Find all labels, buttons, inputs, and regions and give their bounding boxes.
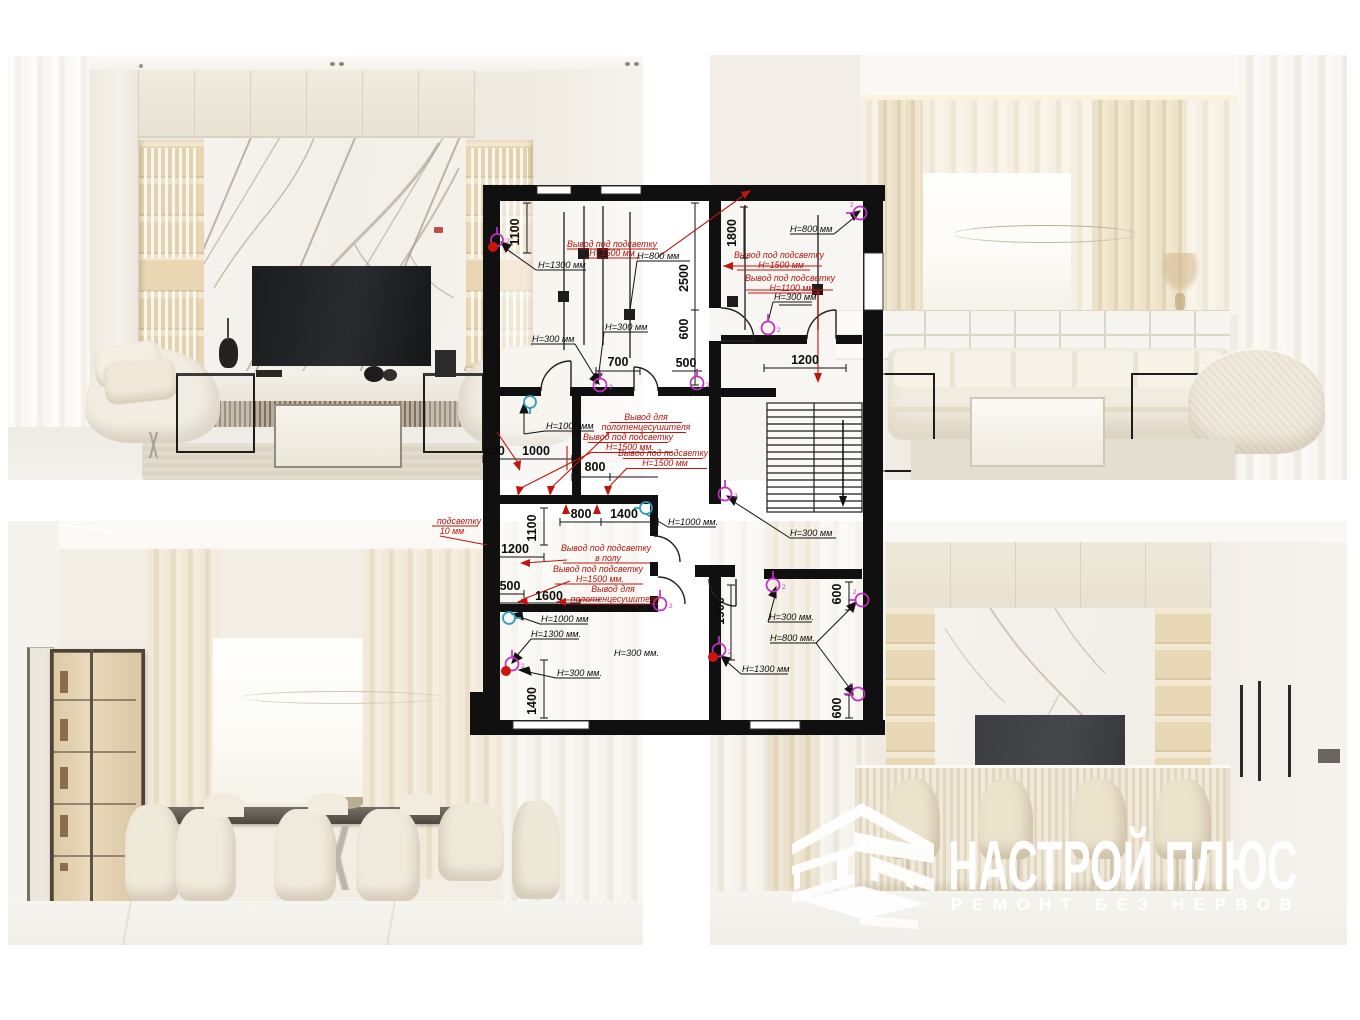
svg-text:2: 2	[850, 202, 854, 209]
svg-text:H=300 мм: H=300 мм	[790, 528, 833, 538]
svg-text:H=300 мм.: H=300 мм.	[769, 612, 814, 622]
svg-text:H=1300 мм: H=1300 мм	[538, 260, 586, 270]
svg-text:H=800 мм: H=800 мм	[637, 251, 680, 261]
svg-text:2: 2	[777, 327, 781, 334]
svg-text:H=1500 мм.: H=1500 мм.	[576, 574, 624, 584]
svg-text:500: 500	[500, 579, 521, 593]
svg-text:600: 600	[830, 584, 844, 605]
svg-text:1400: 1400	[610, 507, 638, 521]
svg-text:Вывод под подсветку: Вывод под подсветку	[553, 564, 644, 574]
svg-text:10 мм: 10 мм	[440, 526, 464, 536]
svg-text:Вывод для: Вывод для	[624, 412, 668, 422]
svg-text:полотенцесушителя: полотенцесушителя	[571, 594, 660, 604]
svg-text:H=300 мм.: H=300 мм.	[557, 668, 602, 678]
svg-text:2: 2	[521, 663, 525, 670]
svg-text:800: 800	[571, 507, 592, 521]
svg-text:800: 800	[585, 460, 606, 474]
svg-text:H=1000 мм: H=1000 мм	[546, 421, 594, 431]
svg-text:1100: 1100	[525, 514, 539, 541]
svg-text:2: 2	[669, 603, 673, 610]
svg-text:H=1500 мм: H=1500 мм	[642, 458, 688, 468]
svg-text:2: 2	[706, 382, 710, 389]
svg-text:H=1000 мм.: H=1000 мм.	[668, 517, 718, 527]
svg-text:Вывод под подсветку: Вывод под подсветку	[745, 273, 836, 283]
svg-text:1200: 1200	[501, 542, 529, 556]
svg-text:Вывод под подсветку: Вывод под подсветку	[583, 432, 674, 442]
svg-text:полотенцесушителя: полотенцесушителя	[602, 422, 691, 432]
svg-text:400: 400	[484, 444, 505, 458]
svg-text:2: 2	[609, 384, 613, 391]
svg-text:500: 500	[676, 356, 697, 370]
svg-text:2: 2	[728, 649, 732, 656]
svg-text:Вывод для: Вывод для	[591, 584, 635, 594]
svg-text:1400: 1400	[525, 687, 539, 715]
svg-text:Вывод под подсветку: Вывод под подсветку	[561, 543, 652, 553]
svg-text:H=300 мм: H=300 мм	[605, 322, 648, 332]
svg-text:H=300 мм: H=300 мм	[774, 292, 817, 302]
svg-text:подсветку: подсветку	[437, 516, 482, 526]
svg-text:1600: 1600	[535, 589, 563, 603]
svg-text:H=1300 мм.: H=1300 мм.	[531, 629, 581, 639]
svg-text:700: 700	[608, 355, 629, 369]
svg-text:2: 2	[734, 493, 738, 500]
svg-text:1900: 1900	[713, 597, 727, 625]
svg-text:в полу: в полу	[595, 553, 621, 563]
svg-text:600: 600	[830, 698, 844, 719]
svg-text:2: 2	[853, 589, 857, 596]
svg-text:1100: 1100	[508, 218, 522, 245]
svg-text:H=1000 мм: H=1000 мм	[541, 614, 589, 624]
svg-text:2500: 2500	[677, 264, 691, 292]
svg-text:H=1100 мм: H=1100 мм	[770, 283, 815, 293]
svg-text:H=1500 мм: H=1500 мм	[589, 248, 635, 258]
svg-text:H=1300 мм: H=1300 мм	[742, 664, 790, 674]
svg-text:H=800 мм: H=800 мм	[790, 224, 833, 234]
svg-text:2: 2	[849, 683, 853, 690]
svg-text:2: 2	[782, 584, 786, 591]
svg-text:H=1500 мм: H=1500 мм	[758, 260, 804, 270]
svg-text:1000: 1000	[522, 444, 550, 458]
svg-text:1200: 1200	[791, 353, 819, 367]
svg-text:Вывод под подсветку: Вывод под подсветку	[734, 250, 825, 260]
svg-text:H=300 мм.: H=300 мм.	[614, 648, 659, 658]
svg-text:H=800 мм.: H=800 мм.	[770, 633, 815, 643]
svg-text:Вывод под подсветку: Вывод под подсветку	[618, 448, 709, 458]
svg-text:600: 600	[677, 319, 691, 340]
svg-text:1800: 1800	[725, 219, 739, 247]
svg-text:H=300 мм: H=300 мм	[532, 334, 575, 344]
